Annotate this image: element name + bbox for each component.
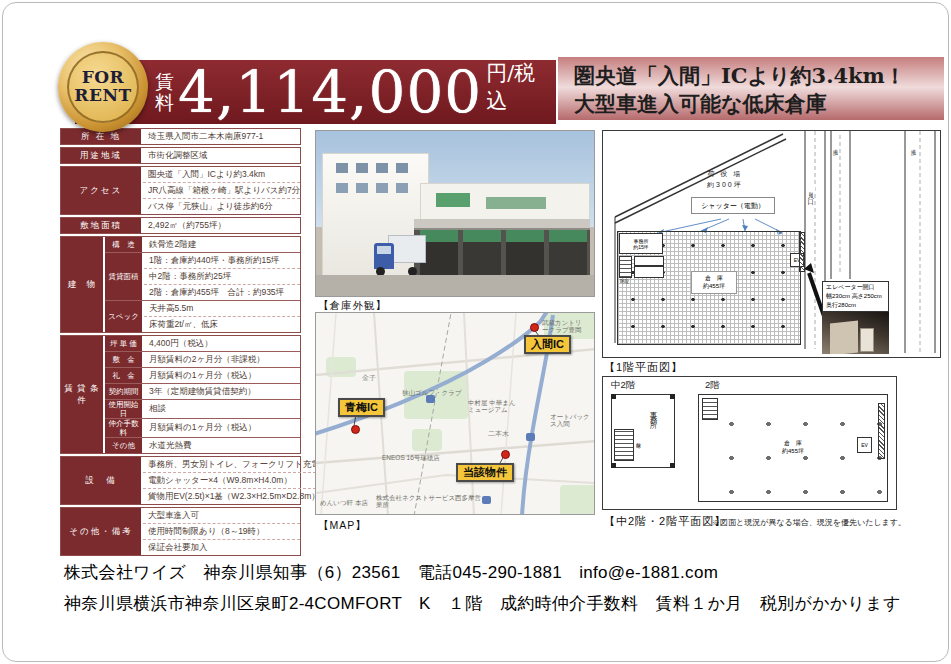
- row-structure-value: 鉄骨造2階建: [144, 237, 300, 252]
- row-terms-other-label: その他: [105, 438, 144, 453]
- seal-line2: RENT: [74, 87, 131, 105]
- row-contract-term-value: 3年（定期建物賃貸借契約）: [144, 384, 300, 399]
- row-equipment: 設 備 事務所、男女別トイレ、フォークリフト充電設備×4 電動シャッター×4（W…: [60, 456, 301, 505]
- plan1-caption: 【1階平面図】: [604, 360, 683, 375]
- f2-warehouse-label: 倉 庫 約455坪: [769, 437, 817, 459]
- poi-label: 武蔵カントリークラブ豊岡: [542, 319, 588, 334]
- price-label-char2: 料: [155, 92, 174, 113]
- for-rent-seal-icon: FOR RENT: [58, 42, 148, 132]
- property-dot-icon: [501, 450, 510, 459]
- f2-ev-shaft-hatch: [878, 403, 885, 459]
- photo-truck: [374, 235, 424, 275]
- ev-shaft-hatch-1f: [799, 232, 805, 272]
- row-key-money-value: 月額賃料の1ヶ月分（税込）: [144, 368, 300, 383]
- row-spec-label: スペック: [105, 301, 144, 332]
- rental-flyer-page: FOR RENT 賃 料 4,114,000 円/税込 圏央道「入間」ICより約…: [0, 0, 951, 664]
- notes-line: 使用時間制限あり（8～19時）: [143, 523, 300, 539]
- poi-label: めんいつ軒 本店: [320, 499, 368, 506]
- marker-property: 当該物件: [456, 463, 514, 482]
- row-rent-area-label: 賃貸面積: [105, 253, 144, 300]
- elevator-callout-line: 奥行280cm: [826, 301, 856, 310]
- rent-area-line: 2階：倉庫約455坪 合計：約935坪: [144, 284, 300, 300]
- room-box-1f: [634, 256, 664, 266]
- row-land-area: 敷地面積 2,492㎡（約755坪）: [60, 217, 301, 234]
- notes-line: 保証会社要加入: [143, 539, 300, 555]
- stairs-label-1f: 階段: [620, 279, 629, 284]
- room-box-1f: [634, 266, 664, 278]
- row-structure-label: 構 造: [105, 237, 144, 252]
- f2-title: 2階: [705, 379, 720, 392]
- plan2-caption: 【中2階・2階平面図】: [604, 514, 726, 529]
- floor-plan-2f: 中2階 事務所 階段 2階 倉 庫 約455坪 EV: [602, 376, 897, 510]
- catch-copy-banner: 圏央道「入間」ICより約3.4km！ 大型車進入可能な低床倉庫: [558, 57, 944, 120]
- photo-bay: [506, 230, 544, 276]
- route-shield-icon: [526, 433, 535, 441]
- photo-green-sign: [436, 193, 470, 207]
- notes-line: 大型車進入可: [143, 508, 300, 523]
- for-rent-seal-text: FOR RENT: [67, 51, 139, 123]
- catch-line2: 大型車進入可能な低床倉庫: [574, 90, 944, 118]
- price-label: 賃 料: [155, 71, 174, 113]
- mezz-stairs: [614, 429, 634, 461]
- route-shield-icon: [482, 496, 491, 504]
- mezz-title: 中2階: [611, 379, 635, 392]
- office-size-1f: 約15坪: [633, 244, 649, 250]
- spec-table: 所 在 地 埼玉県入間市二本木南原977-1 用途地域 市街化調整区域 アクセス…: [60, 128, 301, 558]
- row-zoning-label: 用途地域: [61, 148, 143, 163]
- yard-label: 荷 役 場 約300坪: [707, 169, 743, 190]
- price-unit: 円/税込: [486, 59, 556, 115]
- row-key-money-label: 礼 金: [105, 368, 144, 383]
- area-map: 入間IC 青梅IC 当該物件 武蔵カントリークラブ豊岡 狭山ゴルフ・クラブ 中村…: [315, 312, 595, 515]
- iruma-ic-dot-icon: [530, 323, 539, 332]
- row-location-value: 埼玉県入間市二本木南原977-1: [143, 129, 300, 144]
- row-deposit-value: 月額賃料の2ヶ月分（非課税）: [144, 352, 300, 367]
- stairs-1f: [619, 256, 632, 278]
- elevator-callout-line: 幅230cm 高さ250cm: [826, 292, 882, 301]
- row-land-area-value: 2,492㎡（約755坪）: [143, 218, 300, 233]
- marker-iruma-ic: 入間IC: [524, 335, 571, 354]
- row-notes-label: その他・備考: [61, 508, 143, 555]
- f2-stairs: [702, 398, 718, 420]
- photo-bay: [463, 230, 501, 276]
- row-terms-group: 賃 貸 条 件 坪 単 価 4,400円（税込） 敷 金 月額賃料の2ヶ月分（非…: [60, 335, 301, 454]
- photo-caption: 【倉庫外観】: [318, 299, 387, 313]
- poi-label: ENEOS 16号瑞穂店: [382, 454, 440, 461]
- photo-windows-row2: [336, 183, 416, 193]
- row-building-group: 建 物 構 造 鉄骨造2階建 賃貸面積 1階：倉庫約440坪・事務所約15坪 中…: [60, 236, 301, 333]
- photo-canopy: [414, 219, 590, 228]
- row-spec: スペック 天井高5.5m 床荷重2t/㎡、低床: [105, 300, 300, 332]
- photo-ground: [316, 275, 594, 296]
- row-structure: 構 造 鉄骨造2階建: [105, 237, 300, 252]
- row-deposit-label: 敷 金: [105, 352, 144, 367]
- marker-oume-ic: 青梅IC: [338, 398, 385, 417]
- row-access-label: アクセス: [61, 167, 143, 214]
- row-brokerage-value: 月額賃料の1ヶ月分（税込）: [144, 421, 300, 436]
- route-shield-icon: [426, 395, 435, 403]
- shutter-label: シャッター（電動）: [691, 197, 775, 214]
- photo-bay: [549, 230, 587, 276]
- f2-warehouse-label-2: 約455坪: [782, 448, 804, 456]
- elevator-photo-door: [860, 328, 874, 352]
- row-rent-area: 賃貸面積 1階：倉庫約440坪・事務所約15坪 中2階：事務所約25坪 2階：倉…: [105, 252, 300, 300]
- office-box-1f: 事務所 約15坪: [619, 233, 663, 254]
- row-equipment-label: 設 備: [61, 457, 143, 504]
- town-label: 金子: [362, 373, 376, 383]
- map-caption: 【MAP】: [318, 519, 367, 533]
- row-access: アクセス 圏央道「入間」ICより約3.4km JR八高線「箱根ヶ崎」駅よりバス約…: [60, 166, 301, 215]
- access-line: JR八高線「箱根ヶ崎」駅よりバス約7分: [143, 182, 300, 198]
- warehouse-label-1f-1: 倉 庫: [705, 275, 723, 283]
- row-unit-price: 坪 単 価 4,400円（税込）: [105, 336, 300, 351]
- floor-plan-1f: 荷 役 場 約300坪 シャッター（電動） 事務所 約15坪 階段 倉 庫 約4…: [602, 130, 941, 358]
- poi-label: 中村屋 中華まん ミュージアム: [468, 399, 516, 414]
- town-label: 二本木: [488, 429, 509, 439]
- building-group-label: 建 物: [61, 237, 105, 332]
- price-value: 4,114,000: [178, 63, 482, 121]
- photo-loading-bays: [414, 230, 590, 276]
- truck-windshield: [377, 246, 391, 254]
- elevator-photo: [822, 312, 889, 354]
- yard-label-2: 約300坪: [707, 180, 743, 191]
- access-line: バス停「元狭山」より徒歩約6分: [143, 198, 300, 214]
- access-line: 圏央道「入間」ICより約3.4km: [143, 167, 300, 182]
- row-start-date-value: 相談: [144, 402, 300, 417]
- row-zoning-value: 市街化調整区域: [143, 148, 300, 163]
- elevator-photo-wall: [830, 321, 858, 354]
- spec-line: 天井高5.5m: [144, 301, 300, 316]
- price-label-char1: 賃: [155, 71, 174, 92]
- row-land-area-label: 敷地面積: [61, 218, 143, 233]
- spec-line: 床荷重2t/㎡、低床: [144, 316, 300, 332]
- f2-warehouse-label-1: 倉 庫: [784, 440, 802, 448]
- row-start-date: 使用開始日 相談: [105, 399, 300, 418]
- f2-ev-box: EV: [857, 437, 872, 453]
- f2-plan: 倉 庫 約455坪 EV: [698, 394, 888, 502]
- company-info-line: 株式会社ワイズ 神奈川県知事（6）23561 電話045-290-1881 in…: [64, 561, 718, 584]
- row-notes: その他・備考 大型車進入可 使用時間制限あり（8～19時） 保証会社要加入: [60, 507, 301, 556]
- row-contract-term-label: 契約期間: [105, 384, 144, 399]
- row-deposit: 敷 金 月額賃料の2ヶ月分（非課税）: [105, 351, 300, 367]
- warehouse-label-1f: 倉 庫 約455坪: [691, 271, 737, 294]
- yard-label-1: 荷 役 場: [707, 169, 743, 180]
- photo-green-sign2: [486, 197, 546, 209]
- mezz-plan: 事務所 階段: [611, 394, 675, 468]
- warehouse-label-1f-2: 約455坪: [703, 283, 725, 291]
- elevator-callout-line: エレベーター開口: [826, 283, 875, 292]
- row-unit-price-value: 4,400円（税込）: [144, 336, 300, 351]
- mezz-office-label: 事務所: [648, 405, 658, 420]
- photo-windows-row1: [336, 163, 416, 173]
- elevator-callout: エレベーター開口 幅230cm 高さ250cm 奥行280cm: [822, 281, 889, 312]
- company-address-line: 神奈川県横浜市神奈川区泉町2-4COMFORT K １階 成約時仲介手数料 賃料…: [64, 592, 901, 615]
- poi-label: 株式会社ネクストサービス西多摩営業所: [376, 494, 486, 509]
- row-unit-price-label: 坪 単 価: [105, 336, 144, 351]
- catch-line1: 圏央道「入間」ICより約3.4km！: [574, 62, 944, 90]
- terms-group-label: 賃 貸 条 件: [61, 336, 105, 453]
- poi-label: オートバックス入間: [550, 413, 594, 428]
- row-brokerage-label: 仲介手数料: [105, 419, 144, 437]
- row-brokerage: 仲介手数料 月額賃料の1ヶ月分（税込）: [105, 418, 300, 437]
- oume-ic-dot-icon: [351, 425, 360, 434]
- row-terms-other-value: 水道光熱費: [144, 438, 300, 453]
- entrance-label: 入り口: [806, 187, 815, 194]
- rent-area-line: 1階：倉庫約440坪・事務所約15坪: [144, 253, 300, 268]
- row-start-date-label: 使用開始日: [105, 400, 144, 418]
- warehouse-photo: [315, 130, 595, 297]
- row-terms-other: その他 水道光熱費: [105, 437, 300, 453]
- row-key-money: 礼 金 月額賃料の1ヶ月分（税込）: [105, 367, 300, 383]
- plan2-note: ※図面と現況が異なる場合、現況を優先いたします。: [712, 517, 906, 528]
- row-zoning: 用途地域 市街化調整区域: [60, 147, 301, 164]
- rent-area-line: 中2階：事務所約25坪: [144, 268, 300, 284]
- row-contract-term: 契約期間 3年（定期建物賃貸借契約）: [105, 383, 300, 399]
